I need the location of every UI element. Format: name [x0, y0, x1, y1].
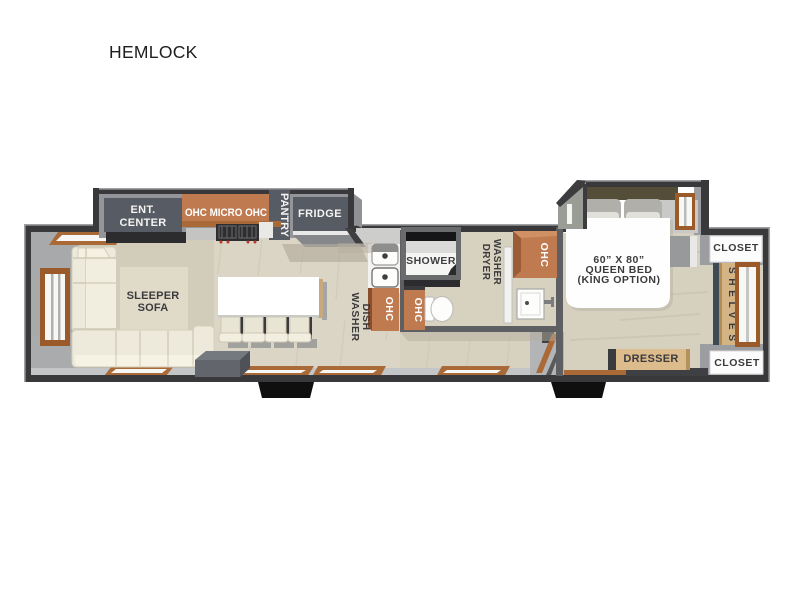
svg-text:WASHER: WASHER: [349, 292, 361, 341]
svg-text:DRYER: DRYER: [480, 244, 491, 281]
svg-text:WASHER: WASHER: [491, 239, 502, 286]
svg-text:SOFA: SOFA: [138, 302, 169, 314]
svg-text:OHC: OHC: [383, 297, 395, 322]
svg-text:OHC MICRO OHC: OHC MICRO OHC: [185, 207, 267, 219]
svg-text:OHC: OHC: [538, 243, 550, 268]
svg-text:CLOSET: CLOSET: [714, 357, 760, 369]
svg-text:ENT.: ENT.: [130, 204, 155, 216]
svg-text:CENTER: CENTER: [119, 217, 166, 229]
svg-text:(KING OPTION): (KING OPTION): [578, 274, 661, 286]
svg-text:DRESSER: DRESSER: [623, 353, 678, 365]
svg-text:FRIDGE: FRIDGE: [298, 208, 342, 220]
svg-text:PANTRY: PANTRY: [278, 193, 290, 238]
svg-text:SLEEPER: SLEEPER: [127, 290, 180, 302]
svg-text:OHC: OHC: [412, 298, 424, 323]
svg-text:SHOWER: SHOWER: [406, 255, 456, 267]
svg-text:CLOSET: CLOSET: [713, 242, 759, 254]
